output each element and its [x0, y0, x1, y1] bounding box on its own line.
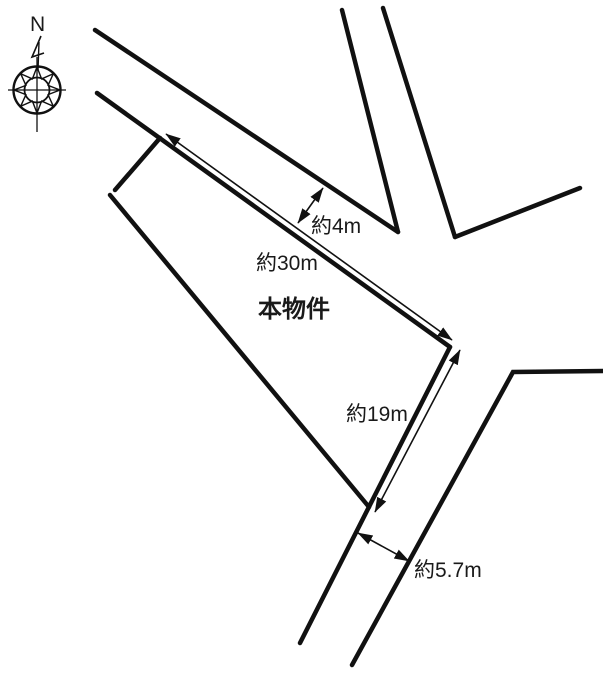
road-width-bottom-label: 約5.7m [414, 560, 482, 581]
compass-needle-shaft [38, 42, 39, 70]
property-northwest-notch-edge [115, 138, 160, 190]
road-width-bottom-dimension-arrow [358, 533, 409, 561]
frontage-label: 約30m [256, 253, 318, 274]
property-west-boundary [110, 195, 369, 507]
property-label: 本物件 [258, 298, 330, 322]
road-east-north-edge [455, 188, 580, 237]
road-northeast-east-edge [383, 8, 455, 237]
east-side-label: 約19m [346, 404, 408, 425]
compass-north-label: N [30, 14, 45, 35]
road-south-west-edge-property-east-boundary [300, 347, 450, 643]
road-width-top-label: 約4m [311, 216, 361, 237]
plot-diagram-drawing [0, 0, 603, 673]
plot-diagram-canvas: N約4m約30m本物件約19m約5.7m [0, 0, 603, 673]
